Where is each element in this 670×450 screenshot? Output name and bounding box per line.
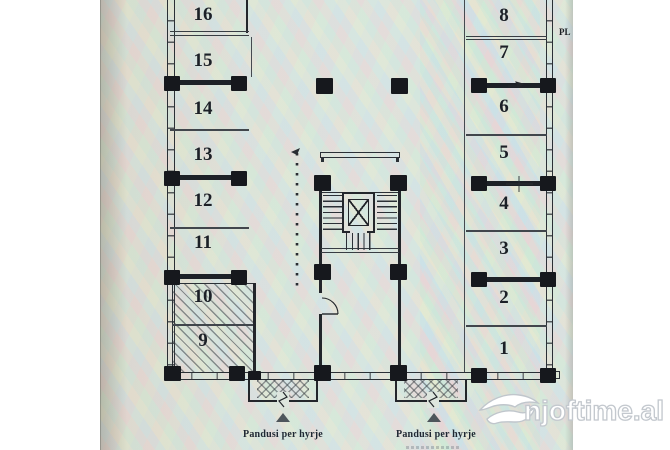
canopy-tab: [321, 158, 324, 162]
stair-flight: [346, 233, 373, 250]
space-label-5: 5: [486, 142, 522, 164]
structural-beam: [486, 181, 542, 186]
entrance-arrow-icon: [276, 413, 290, 422]
structural-beam: [486, 277, 542, 282]
space-label-4: 4: [486, 193, 522, 215]
column: [390, 264, 407, 280]
column: [471, 272, 487, 287]
column: [471, 368, 487, 383]
space-label-14: 14: [185, 98, 221, 120]
column: [471, 78, 487, 93]
plan-corner-note: PL: [559, 27, 571, 37]
canopy-wall: [320, 152, 400, 158]
column: [540, 272, 556, 287]
space-label-2: 2: [486, 287, 522, 309]
space-label-8: 8: [486, 5, 522, 27]
bay-edge-line: [464, 0, 465, 372]
partition-wall: [251, 37, 252, 77]
space-label-13: 13: [185, 144, 221, 166]
bay-divider: [170, 129, 249, 131]
floorplan-linework: [0, 0, 670, 450]
column: [540, 78, 556, 93]
illegible-small-text: [406, 446, 460, 449]
space-label-12: 12: [185, 190, 221, 212]
column: [471, 176, 487, 191]
canopy-tab: [396, 158, 399, 162]
column: [316, 78, 333, 94]
column: [164, 76, 180, 91]
column: [540, 176, 556, 191]
exterior-wall-bottom: [167, 372, 553, 380]
bay-divider: [466, 134, 547, 136]
entrance-label-left: Pandusi per hyrje: [231, 429, 335, 440]
column: [391, 78, 408, 94]
bay-divider: [466, 36, 547, 40]
space-label-9: 9: [185, 330, 221, 352]
column: [231, 171, 247, 186]
space-label-7: 7: [486, 42, 522, 64]
bay-divider: [466, 325, 547, 327]
column: [314, 175, 331, 191]
column: [231, 270, 247, 285]
stair-flight: [323, 195, 343, 233]
space-label-3: 3: [486, 238, 522, 260]
space-label-11: 11: [185, 232, 221, 254]
partition-wall: [253, 283, 256, 373]
column: [540, 368, 556, 383]
structural-beam: [178, 175, 234, 180]
bay-divider: [170, 227, 249, 229]
space-label-10: 10: [185, 286, 221, 308]
entrance-label-right: Pandusi per hyrje: [384, 429, 488, 440]
column: [248, 371, 261, 380]
entrance-ramp: [248, 380, 318, 402]
entrance-arrow-icon: [427, 413, 441, 422]
column: [164, 366, 181, 381]
column: [314, 365, 331, 381]
stair-flight: [377, 195, 397, 233]
structural-beam: [178, 80, 234, 85]
watermark-text: njoftime.al: [524, 395, 664, 427]
watermark: njoftime.al: [474, 389, 664, 433]
structural-beam: [178, 274, 234, 279]
bay-divider: [466, 230, 547, 232]
structural-beam: [486, 83, 542, 88]
floorplan-photo: 16 15 14 13 12 11 10 9 8 7 6 5 4 3 2 1 P…: [0, 0, 670, 450]
space-label-15: 15: [185, 50, 221, 72]
space-label-1: 1: [486, 338, 522, 360]
column: [231, 76, 247, 91]
column: [229, 366, 245, 381]
elevator-cab: [348, 199, 369, 226]
entrance-ramp: [395, 380, 467, 402]
column: [314, 264, 331, 280]
column: [390, 365, 407, 381]
partition-wall: [246, 0, 248, 33]
column: [164, 270, 180, 285]
column: [390, 175, 407, 191]
column: [164, 171, 180, 186]
bay-divider: [172, 324, 254, 326]
bay-divider: [170, 31, 249, 36]
space-label-16: 16: [185, 4, 221, 26]
space-label-6: 6: [486, 96, 522, 118]
